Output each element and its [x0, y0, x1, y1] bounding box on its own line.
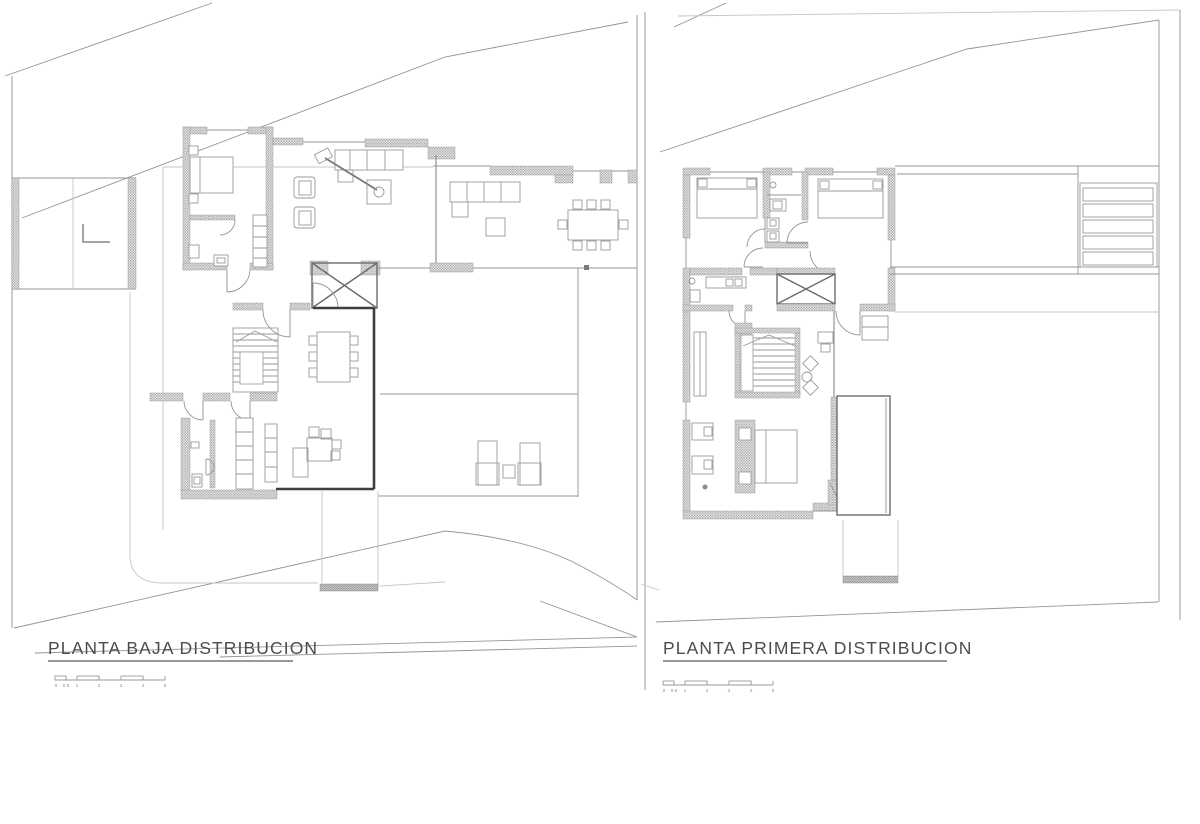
scale-tick-label: 3: [728, 688, 731, 693]
scale-tick-label: 4: [142, 683, 145, 688]
scale-tick-label: 0: [663, 688, 666, 693]
scale-tick-label: 5: [772, 688, 775, 693]
staircase-ground: [233, 328, 278, 392]
bathroom-center: [765, 172, 808, 248]
dining-terrace: [377, 166, 637, 272]
scale-tick-label: 4: [750, 688, 753, 693]
scale-tick-label: 0.5: [63, 683, 70, 688]
hall-and-stair: [150, 303, 310, 499]
ground-floor-title: PLANTA BAJA DISTRIBUCION: [48, 638, 318, 658]
bedroom-1: [697, 172, 770, 267]
void-cross-box: [777, 268, 860, 335]
walkway-first: [843, 520, 898, 583]
scale-tick-label: 5: [164, 683, 167, 688]
pouf-group: [802, 332, 833, 395]
staircase-first: [735, 328, 800, 398]
scale-tick-label: 2: [706, 688, 709, 693]
first-floor-plan: [641, 3, 1180, 690]
terrace-marker: [584, 265, 589, 270]
site-boundary-right: [641, 3, 1180, 690]
scale-tick-label: 0: [55, 683, 58, 688]
scale-tick-label: 0.5: [671, 688, 678, 693]
living-room: [273, 138, 455, 275]
scale-tick-label: 2: [98, 683, 101, 688]
family-room: [276, 308, 374, 489]
wardrobe: [253, 215, 267, 267]
sofa: [335, 150, 403, 182]
scale-bar-ground: 0 0.5 1 2 3 4 5: [55, 676, 167, 688]
outdoor-dining-table: [558, 200, 628, 250]
floor-drain: [703, 485, 708, 490]
pergola-louvers: [1080, 183, 1157, 267]
first-floor-title: PLANTA PRIMERA DISTRIBUCION: [663, 638, 972, 658]
balcony: [837, 396, 890, 515]
garage: [12, 178, 136, 289]
sun-loungers: [476, 441, 541, 485]
site-boundary-left: [5, 3, 637, 657]
walkway-ground: [320, 491, 378, 591]
kitchen-island: [309, 332, 358, 382]
lower-terrace: [378, 268, 578, 497]
roof-terrace: [890, 166, 1159, 312]
hall-shelving: [236, 418, 277, 489]
scale-tick-label: 1: [684, 688, 687, 693]
entry-porch: [312, 263, 377, 308]
hall-closet: [862, 316, 888, 340]
scale-tick-label: 3: [120, 683, 123, 688]
bathroom-2: [689, 277, 746, 327]
garage-door-mark: [83, 224, 110, 242]
ground-floor-plan: [5, 3, 637, 657]
armchairs: [294, 177, 315, 228]
scale-bar-first: 0 0.5 1 2 3 4 5: [663, 681, 775, 693]
master-bedroom: [692, 420, 837, 497]
bed-single: [189, 146, 233, 203]
bedroom-suite: [183, 127, 273, 292]
scale-tick-label: 1: [76, 683, 79, 688]
desk-group: [293, 427, 341, 477]
outdoor-sofa: [450, 182, 520, 236]
floor-plan-sheet: PLANTA BAJA DISTRIBUCION PLANTA PRIMERA …: [0, 0, 1200, 824]
